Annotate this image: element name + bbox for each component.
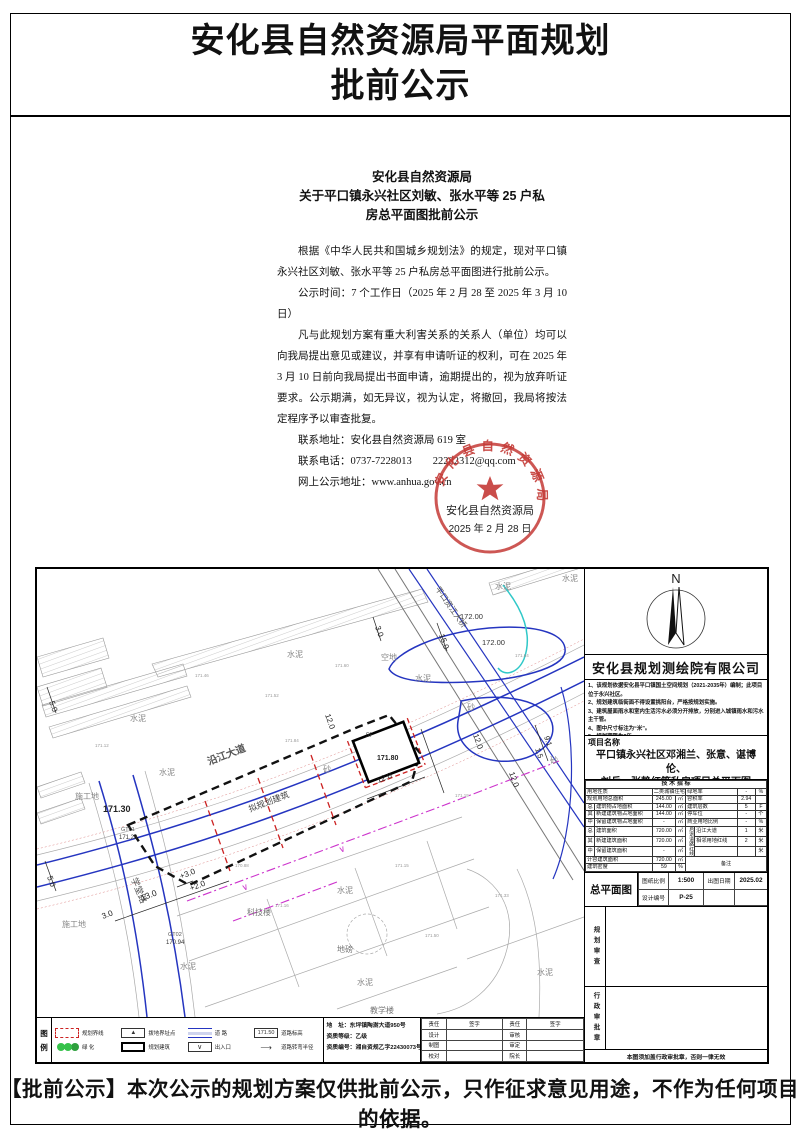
tech-cell: 建筑层数 bbox=[686, 803, 738, 811]
admin-approval-label-col: 行政审批章 bbox=[585, 987, 606, 1049]
drawing-info-section: 总平面图 图纸比例 1:500 出图日期 2025.02 设计编号 P-25 bbox=[585, 873, 767, 907]
legend-item-building: 规划建筑 bbox=[121, 1042, 187, 1052]
tech-indicators-section: 技 术 指 标用地性质二类城镇住宅用地绿地率-%规划用地总面积245.00㎡容积… bbox=[585, 780, 767, 873]
tech-cell: 建筑面积 bbox=[595, 826, 653, 836]
empty-cell bbox=[703, 890, 734, 907]
date-value: 2025.02 bbox=[734, 873, 767, 890]
tech-cell: 二类城镇住宅用地 bbox=[652, 788, 685, 796]
map-label: 171.16 bbox=[275, 903, 289, 908]
legend-item-label: 道 路 bbox=[215, 1029, 227, 1037]
tech-cell: - bbox=[737, 788, 755, 796]
map-label: 水泥 bbox=[357, 977, 373, 987]
note-line: 3、建筑屋面雨水和室内生活污水必须分开排放，分别进入城镇雨水和污水主干管。 bbox=[588, 708, 764, 725]
map-label: 171.84 bbox=[285, 738, 299, 743]
legend-item-label: 拨地界址点 bbox=[148, 1029, 175, 1037]
tech-cell: ㎡ bbox=[675, 818, 685, 826]
tech-cell bbox=[695, 846, 737, 856]
sign-cell bbox=[446, 1051, 503, 1062]
admin-approval-stamp-area bbox=[606, 987, 767, 1049]
map-label: 171.12 bbox=[95, 743, 109, 748]
tech-cell: 后退道路红线 bbox=[686, 826, 695, 856]
map-label: 170.94 bbox=[166, 940, 185, 946]
legend-title-char1: 图 bbox=[40, 1028, 48, 1039]
map-label: 172.00 bbox=[482, 638, 505, 647]
tech-cell: - bbox=[652, 818, 675, 826]
map-label: 171.46 bbox=[195, 673, 209, 678]
tech-cell bbox=[737, 846, 755, 856]
tech-cell: 建筑物占地面积 bbox=[595, 803, 653, 811]
company-address: 地 址：东坪镇陶澍大道950号 bbox=[326, 1021, 418, 1032]
legend-item-label: 规划界线 bbox=[82, 1029, 104, 1037]
legend-item-label: 绿 化 bbox=[82, 1043, 94, 1051]
map-label: 171.80 bbox=[377, 755, 399, 762]
tech-cell: 保留建筑面积 bbox=[595, 846, 653, 856]
map-label: 172.00 bbox=[460, 612, 483, 621]
tech-cell bbox=[755, 796, 766, 804]
sign-cell bbox=[527, 1051, 584, 1062]
notice-heading-line2: 关于平口镇永兴社区刘敏、张水平等 25 户私 bbox=[277, 187, 567, 206]
parcel-lines bbox=[37, 645, 584, 1017]
notes-section: 1、该规划依据安化县平口镇国土空间规划（2021-2035年）编制；此项目位于永… bbox=[585, 680, 767, 736]
tech-cell: 中 bbox=[586, 818, 595, 826]
tech-cell: - bbox=[737, 811, 755, 819]
svg-text:安化县自然资源局: 安化县自然资源局 bbox=[432, 438, 550, 507]
design-no-value: P-25 bbox=[668, 890, 703, 907]
stream-line bbox=[498, 585, 527, 673]
sign-header-cell: 签字 bbox=[527, 1019, 584, 1030]
note-line: 1、该规划依据安化县平口镇国土空间规划（2021-2035年）编制；此项目位于永… bbox=[588, 682, 764, 699]
tech-cell: 沿江大道 bbox=[695, 826, 737, 836]
public-notice-page: 安化县自然资源局平面规划 批前公示 安化县自然资源局 关于平口镇永兴社区刘敏、张… bbox=[0, 0, 800, 1131]
tech-cell: 其 bbox=[586, 836, 595, 846]
map-label: 沿江大道 bbox=[205, 741, 247, 767]
boundary-symbol-icon bbox=[55, 1028, 79, 1038]
seal-ring-text: 安化县自然资源局 bbox=[432, 438, 550, 507]
seal-star-icon bbox=[477, 476, 504, 500]
company-name: 安化县规划测绘院有限公司 bbox=[585, 655, 767, 680]
sign-cell: 审定 bbox=[503, 1040, 527, 1051]
date-label: 出图日期 bbox=[703, 873, 734, 890]
green-symbol-icon bbox=[55, 1042, 79, 1052]
site-plan-drawing: 水泥水泥水泥水泥水泥水泥水泥水泥水泥水泥砂砂砂空地施工地施工地科技楼教学楼地磅拟… bbox=[37, 569, 584, 1017]
sign-cell: 校对 bbox=[422, 1051, 446, 1062]
sign-cell: 审核 bbox=[503, 1029, 527, 1040]
sign-cell: 院长 bbox=[503, 1051, 527, 1062]
tech-indicators-table: 技 术 指 标用地性质二类城镇住宅用地绿地率-%规划用地总面积245.00㎡容积… bbox=[585, 780, 767, 872]
legend-item-label: 出入口 bbox=[215, 1043, 231, 1051]
signature-table: 责任签字责任签字设计审核制图审定校对院长 bbox=[421, 1018, 584, 1062]
note-line: 4、图中尺寸标注为“米”。 bbox=[588, 725, 764, 734]
legend-title: 图 例 bbox=[37, 1018, 52, 1062]
tech-cell: F bbox=[755, 803, 766, 811]
map-label: 平口资江大桥 bbox=[433, 584, 469, 629]
building-symbol-icon bbox=[121, 1042, 145, 1052]
sign-cell: 设计 bbox=[422, 1029, 446, 1040]
elev-symbol-icon: 171.50 bbox=[254, 1028, 278, 1038]
empty-cell bbox=[734, 890, 767, 907]
planning-review-section: 规划审查 bbox=[585, 907, 767, 987]
legend-item-entrance: ∨出入口 bbox=[188, 1042, 254, 1052]
tech-cell: 停车位 bbox=[686, 811, 738, 819]
tech-cell: 144.00 bbox=[652, 811, 675, 819]
seal-org-text: 安化县自然资源局 bbox=[446, 503, 534, 517]
map-label: 空地 bbox=[381, 652, 397, 662]
legend-item-marker: ▲拨地界址点 bbox=[121, 1028, 187, 1038]
tech-cell: % bbox=[755, 788, 766, 796]
map-label: +3.0 bbox=[178, 867, 196, 881]
map-label: 砂 bbox=[467, 702, 475, 712]
map-label: 水泥 bbox=[495, 581, 511, 591]
radius-symbol-icon: ⟶ bbox=[254, 1042, 278, 1052]
tech-cell: 规划用地总面积 bbox=[586, 796, 653, 804]
map-label: 5F bbox=[366, 733, 373, 739]
sign-cell bbox=[527, 1040, 584, 1051]
entrance-symbol-icon: ∨ bbox=[188, 1042, 212, 1052]
legend-item-road: 道 路 bbox=[188, 1028, 254, 1038]
tech-cell: 2.94 bbox=[737, 796, 755, 804]
map-label: 12.0 bbox=[323, 713, 337, 731]
tech-cell: 建筑密度 bbox=[586, 864, 653, 872]
tech-cell: ㎡ bbox=[675, 796, 685, 804]
map-label: 水泥 bbox=[562, 573, 578, 583]
footer-disclaimer: 【批前公示】本次公示的规划方案仅供批前公示，只作征求意见用途，不作为任何项目的依… bbox=[0, 1072, 800, 1131]
tech-cell: 米 bbox=[755, 846, 766, 856]
tech-cell: 新建建筑面积 bbox=[595, 836, 653, 846]
sign-cell bbox=[527, 1029, 584, 1040]
company-grade: 资质等级：乙级 bbox=[326, 1032, 418, 1043]
legend-item-label: 规划建筑 bbox=[148, 1043, 170, 1051]
signature-table-wrap: 责任签字责任签字设计审核制图审定校对院长 bbox=[420, 1018, 584, 1062]
legend-title-char2: 例 bbox=[40, 1042, 48, 1053]
company-cert: 资质编号：湘自资规乙字22430073号 bbox=[326, 1043, 418, 1054]
tech-cell: 中 bbox=[586, 846, 595, 856]
project-name-label: 项目名称 bbox=[588, 737, 764, 749]
drawing-title: 总平面图 bbox=[585, 873, 638, 906]
legend-item-label: 道路标高 bbox=[281, 1029, 303, 1037]
notice-paragraph: 根据《中华人民共和国城乡规划法》的规定，现对平口镇永兴社区刘敏、张水平等 25 … bbox=[277, 241, 567, 283]
company-address-block: 地 址：东坪镇陶澍大道950号 资质等级：乙级 资质编号：湘自资规乙字22430… bbox=[323, 1018, 420, 1062]
tech-cell: 720.00 bbox=[652, 856, 675, 864]
notice-heading-line3: 房总平面图批前公示 bbox=[277, 206, 567, 225]
note-line: 2、规划建筑临街面不得设置挑阳台，严格按规划实施。 bbox=[588, 699, 764, 708]
map-label: 171.19 bbox=[455, 793, 469, 798]
map-label: 171.60 bbox=[335, 663, 349, 668]
map-label: 171.30 bbox=[103, 804, 131, 814]
title-block-panel: N 安化县规划测绘院有限公司 1、该规划依据安化县平口镇国土空间规划（2021-… bbox=[584, 569, 767, 1062]
map-label: 3.0 bbox=[100, 908, 114, 921]
legend-item-radius: ⟶道路转弯半径 bbox=[254, 1042, 320, 1052]
notice-heading-org: 安化县自然资源局 bbox=[277, 168, 567, 187]
tech-cell: 保留建筑物占地面积 bbox=[595, 818, 653, 826]
notice-paragraph: 公示时间：7 个工作日（2025 年 2 月 28 至 2025 年 3 月 1… bbox=[277, 283, 567, 325]
roads-blue bbox=[37, 569, 584, 1017]
notice-heading: 安化县自然资源局 关于平口镇永兴社区刘敏、张水平等 25 户私 房总平面图批前公… bbox=[277, 168, 567, 225]
map-label: 水泥 bbox=[337, 885, 353, 895]
map-label: 水泥 bbox=[159, 767, 175, 777]
north-arrow-section: N bbox=[585, 569, 767, 655]
planning-review-label-col: 规划审查 bbox=[585, 907, 606, 986]
tech-cell: - bbox=[737, 818, 755, 826]
map-label: 教学楼 bbox=[370, 1005, 394, 1015]
map-label: GT01 bbox=[121, 827, 135, 833]
scale-label: 图纸比例 bbox=[638, 873, 668, 890]
road-symbol-icon bbox=[188, 1028, 212, 1038]
map-label: 水泥 bbox=[287, 649, 303, 659]
map-label: ∨ bbox=[337, 843, 347, 855]
site-plan-area: 水泥水泥水泥水泥水泥水泥水泥水泥水泥水泥砂砂砂空地施工地施工地科技楼教学楼地磅拟… bbox=[37, 569, 584, 1062]
seal-icon: 安化县自然资源局 安化县自然资源局 2025 年 2 月 28 日 bbox=[428, 436, 552, 560]
map-label: 170.88 bbox=[235, 863, 249, 868]
tech-cell: 其 bbox=[586, 811, 595, 819]
map-label: 3.0 bbox=[373, 625, 385, 639]
tech-cell: 新建建筑物占地面积 bbox=[595, 811, 653, 819]
tech-cell: 商业用地比例 bbox=[686, 818, 738, 826]
tech-cell: 技 术 指 标 bbox=[586, 781, 767, 789]
project-section: 项目名称 平口镇永兴社区邓湘兰、张意、谌博伦、 刘兵、张静红等私房项目总平面图 bbox=[585, 736, 767, 780]
seal-date-text: 2025 年 2 月 28 日 bbox=[449, 522, 532, 535]
tech-cell: 144.00 bbox=[652, 803, 675, 811]
map-label: 171.28 bbox=[119, 835, 138, 841]
official-seal: 安化县自然资源局 安化县自然资源局 2025 年 2 月 28 日 bbox=[428, 436, 552, 560]
map-labels: 水泥水泥水泥水泥水泥水泥水泥水泥水泥水泥砂砂砂空地施工地施工地科技楼教学楼地磅拟… bbox=[45, 573, 578, 1015]
page-title-line1: 安化县自然资源局平面规划 bbox=[191, 19, 611, 64]
map-label: 171.50 bbox=[425, 933, 439, 938]
tech-cell: 59 bbox=[652, 864, 675, 872]
project-name-line1: 平口镇永兴社区邓湘兰、张意、谌博伦、 bbox=[588, 749, 764, 776]
tech-cell: ㎡ bbox=[675, 846, 685, 856]
sign-cell bbox=[446, 1040, 503, 1051]
tech-cell: 2 bbox=[737, 836, 755, 846]
tech-cell: ㎡ bbox=[675, 811, 685, 819]
tech-cell: 容积率 bbox=[686, 796, 738, 804]
sign-cell: 制图 bbox=[422, 1040, 446, 1051]
tech-cell: 米 bbox=[755, 836, 766, 846]
tech-cell: 1 bbox=[737, 826, 755, 836]
tech-cell: 备注 bbox=[686, 856, 767, 871]
legend-item-boundary: 规划界线 bbox=[55, 1028, 121, 1038]
tech-cell: 个 bbox=[755, 811, 766, 819]
tech-cell: 5 bbox=[737, 803, 755, 811]
map-label: 水泥 bbox=[415, 673, 431, 683]
tech-cell: 总 bbox=[586, 803, 595, 811]
tech-cell: 总 bbox=[586, 826, 595, 836]
red-division-lines bbox=[205, 755, 336, 871]
tech-cell: 相邻用地红线 bbox=[695, 836, 737, 846]
map-label: 砂 bbox=[323, 764, 331, 774]
legend-item-elev: 171.50道路标高 bbox=[254, 1028, 320, 1038]
marker-symbol-icon: ▲ bbox=[121, 1028, 145, 1038]
map-label: GT02 bbox=[168, 932, 182, 938]
site-plan-box: 水泥水泥水泥水泥水泥水泥水泥水泥水泥水泥砂砂砂空地施工地施工地科技楼教学楼地磅拟… bbox=[35, 567, 769, 1064]
map-label: +2.0 bbox=[188, 879, 206, 893]
map-label: 171.64 bbox=[515, 653, 529, 658]
tech-cell: 绿地率 bbox=[686, 788, 738, 796]
map-label: 171.33 bbox=[495, 893, 509, 898]
map-label: 171.52 bbox=[265, 693, 279, 698]
map-label: 水泥 bbox=[180, 961, 196, 971]
map-label: 科技楼 bbox=[247, 907, 271, 917]
legend-item-label: 道路转弯半径 bbox=[281, 1043, 313, 1051]
north-label: N bbox=[671, 571, 680, 586]
admin-approval-section: 行政审批章 bbox=[585, 987, 767, 1050]
tech-cell: 720.00 bbox=[652, 836, 675, 846]
tech-cell: 720.00 bbox=[652, 826, 675, 836]
map-label: 9.1 bbox=[542, 735, 554, 748]
legend-items: 规划界线▲拨地界址点道 路171.50道路标高绿 化规划建筑∨出入口⟶道路转弯半… bbox=[52, 1018, 324, 1062]
map-label: 施工地 bbox=[75, 791, 99, 801]
notice-paragraph: 凡与此规划方案有重大利害关系的关系人（单位）均可以向我局提出意见或建议，并享有申… bbox=[277, 325, 567, 430]
legend-item-green: 绿 化 bbox=[55, 1042, 121, 1052]
tech-cell: ㎡ bbox=[675, 826, 685, 836]
tech-cell: ㎡ bbox=[675, 803, 685, 811]
sign-header-cell: 责任 bbox=[422, 1019, 446, 1030]
tech-cell: % bbox=[755, 818, 766, 826]
map-label: 5.0 bbox=[45, 875, 57, 889]
page-title-line2: 批前公示 bbox=[331, 64, 471, 109]
map-label: 171.15 bbox=[395, 863, 409, 868]
title-banner: 安化县自然资源局平面规划 批前公示 bbox=[10, 13, 791, 117]
sign-header-cell: 责任 bbox=[503, 1019, 527, 1030]
tech-cell: ㎡ bbox=[675, 856, 685, 864]
admin-approval-label: 行政审批章 bbox=[590, 992, 600, 1045]
planning-review-label: 规划审查 bbox=[590, 926, 600, 968]
tech-cell: ㎡ bbox=[675, 836, 685, 846]
map-label: 施工地 bbox=[62, 919, 86, 929]
legend-strip: 图 例 规划界线▲拨地界址点道 路171.50道路标高绿 化规划建筑∨出入口⟶道… bbox=[37, 1017, 584, 1062]
planning-review-stamp-area bbox=[606, 907, 767, 986]
tech-cell: 用地性质 bbox=[586, 788, 653, 796]
sign-header-cell: 签字 bbox=[446, 1019, 503, 1030]
panel-bottom-note: 本图须加盖行政审批章，否则一律无效 bbox=[585, 1050, 767, 1062]
tech-cell: % bbox=[675, 864, 685, 872]
drawing-info-grid: 图纸比例 1:500 出图日期 2025.02 设计编号 P-25 bbox=[638, 873, 767, 906]
tech-cell: 米 bbox=[755, 826, 766, 836]
north-arrow-icon: N bbox=[585, 569, 767, 655]
map-label: 地磅 bbox=[337, 944, 353, 954]
map-label: 砂 bbox=[550, 755, 558, 765]
tech-cell: 计容建筑面积 bbox=[586, 856, 653, 864]
scale-value: 1:500 bbox=[668, 873, 703, 890]
tech-cell: 245.00 bbox=[652, 796, 675, 804]
tech-cell: - bbox=[652, 846, 675, 856]
map-label: 水泥 bbox=[130, 713, 146, 723]
map-label: 水泥 bbox=[537, 967, 553, 977]
design-no-label: 设计编号 bbox=[638, 890, 668, 907]
sign-cell bbox=[446, 1029, 503, 1040]
